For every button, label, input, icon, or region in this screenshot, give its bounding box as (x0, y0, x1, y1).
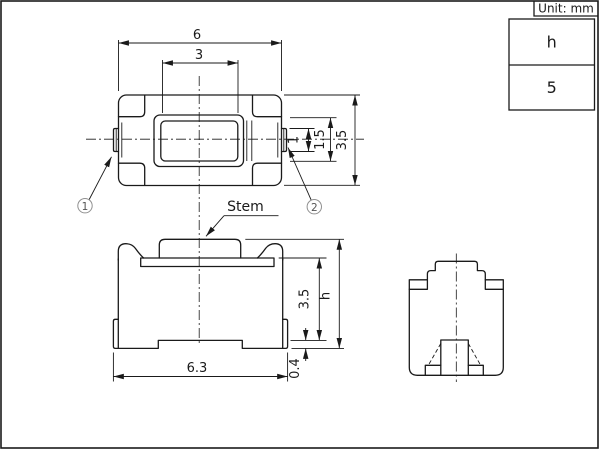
stem-callout: Stem (206, 199, 279, 236)
front-cover-clip-left (118, 244, 143, 260)
top-corner-notches (119, 95, 282, 185)
spec-table: h 5 (509, 19, 595, 110)
stem-label-leader (206, 216, 224, 237)
callout-1-number: 1 (82, 201, 89, 213)
dim-body-depth-value: 3.5 (335, 130, 350, 151)
dim-terminal-width: 1 (287, 129, 315, 152)
front-view-dimensions: 6.3 0.4 3.5 h (113, 239, 344, 381)
front-terminal-left (113, 319, 118, 348)
dim-stem-depth-value: 1.5 (313, 129, 328, 150)
dim-body-width-value: 6 (193, 28, 201, 43)
drawing-sheet: Unit: mm h 5 6 (0, 0, 600, 450)
front-stem (159, 239, 240, 258)
dim-stem-width: 3 (163, 48, 239, 113)
top-stem-outer (154, 115, 244, 167)
side-view (409, 254, 503, 383)
top-inner-wall-edges (122, 123, 278, 158)
top-body-outline (119, 95, 282, 186)
dim-stem-width-value: 3 (195, 48, 203, 63)
dim-standoff-value: 0.4 (288, 358, 303, 379)
unit-box: Unit: mm (534, 1, 598, 16)
dim-terminal-width-value: 1 (287, 136, 302, 144)
front-view (113, 239, 287, 348)
front-cover-plate (141, 258, 274, 267)
dim-standoff-ext (291, 340, 345, 348)
stem-label: Stem (227, 199, 264, 215)
top-stem-neck-edges (247, 121, 252, 162)
spec-param-name: h (547, 33, 557, 52)
technical-drawing: Unit: mm h 5 6 (0, 0, 600, 450)
dim-overall-width-value: 6.3 (187, 361, 208, 376)
spec-param-value: 5 (547, 78, 557, 97)
dim-base-height-value: 3.5 (298, 289, 313, 310)
side-standoff-feet (425, 365, 483, 375)
dim-stem-width-ext (163, 60, 239, 113)
callout-2-number: 2 (311, 202, 318, 214)
front-body-bottom (118, 340, 282, 348)
side-center-terminal (441, 340, 469, 375)
dim-total-height-value: h (319, 292, 334, 300)
dim-overall-width: 6.3 (113, 353, 287, 382)
side-hidden-terminal-bends (429, 344, 481, 366)
callout-terminal-2: 2 (288, 148, 321, 214)
callout-terminal-1: 1 (78, 157, 112, 213)
callout-1-leader (89, 157, 111, 200)
unit-label: Unit: mm (538, 2, 594, 16)
front-terminal-right (283, 319, 288, 348)
dim-standoff: 0.4 (288, 328, 344, 379)
top-view (86, 76, 364, 345)
front-body-sides (118, 259, 282, 348)
callout-2-leader (288, 148, 311, 201)
